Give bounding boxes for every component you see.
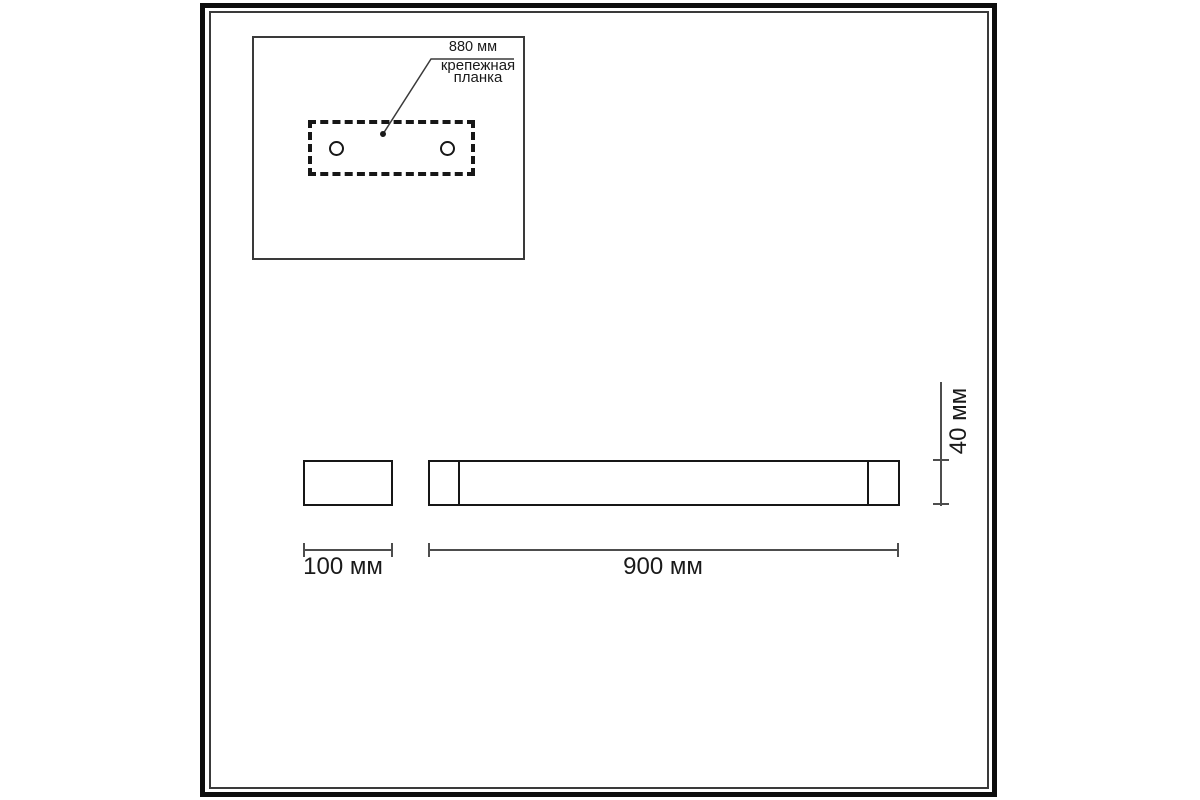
front-view-right-endcap-line — [867, 462, 869, 504]
dimension-tick-40mm-bottom — [933, 503, 949, 505]
front-view-rectangle — [428, 460, 900, 506]
height-dimension-label: 40 мм — [945, 371, 969, 471]
plate-length-label: 880 мм — [431, 40, 515, 56]
mounting-hole-left — [329, 141, 344, 156]
dimension-line-900mm — [428, 549, 899, 551]
mounting-plate-label: крепежная планка — [438, 60, 518, 83]
side-view-rectangle — [303, 460, 393, 506]
drawing-canvas: 880 мм крепежная планка 100 мм 900 мм 40… — [0, 0, 1200, 800]
front-view-left-endcap-line — [458, 462, 460, 504]
dimension-line-100mm — [303, 549, 393, 551]
dimension-line-40mm — [940, 382, 942, 506]
dimension-tick-900mm-right — [897, 543, 899, 557]
front-width-dimension-label: 900 мм — [613, 553, 713, 581]
mounting-hole-right — [440, 141, 455, 156]
side-width-dimension-label: 100 мм — [293, 553, 393, 581]
dimension-tick-900mm-left — [428, 543, 430, 557]
